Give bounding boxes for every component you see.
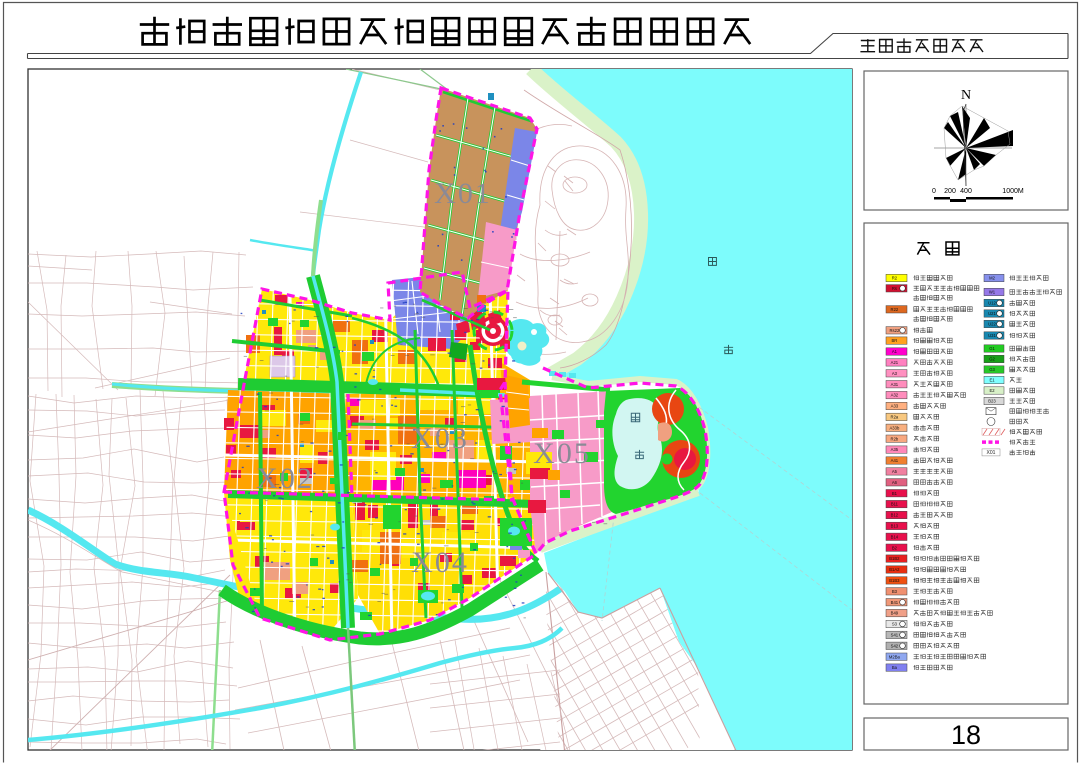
svg-text:A1: A1 (892, 349, 898, 354)
svg-text:A33b: A33b (890, 425, 900, 430)
svg-text:B1B3: B1B3 (889, 578, 900, 583)
svg-text:E2: E2 (989, 388, 995, 393)
svg-text:U12: U12 (988, 301, 996, 306)
svg-text:E1: E1 (989, 378, 995, 383)
svg-text:A6: A6 (892, 480, 898, 485)
svg-text:G3: G3 (989, 367, 995, 372)
svg-text:R2a: R2a (891, 415, 899, 420)
svg-text:G2: G2 (989, 357, 995, 362)
svg-text:B41: B41 (891, 600, 899, 605)
svg-text:A21: A21 (891, 360, 899, 365)
svg-text:W1: W1 (989, 290, 996, 295)
svg-text:M2: M2 (989, 276, 995, 281)
svg-text:A41: A41 (891, 458, 899, 463)
svg-text:U22: U22 (988, 322, 996, 327)
svg-text:X04: X04 (411, 546, 469, 579)
svg-text:B1: B1 (892, 491, 898, 496)
svg-text:A5: A5 (892, 469, 898, 474)
svg-text:B14: B14 (891, 534, 899, 539)
svg-text:X05: X05 (533, 437, 591, 470)
svg-text:A3: A3 (892, 371, 898, 376)
svg-text:1000M: 1000M (1002, 188, 1024, 195)
svg-text:B3: B3 (892, 589, 898, 594)
svg-text:Ba: Ba (892, 665, 898, 670)
svg-text:200: 200 (944, 188, 956, 195)
svg-text:M2Ba: M2Ba (889, 654, 901, 659)
svg-text:B1A2: B1A2 (889, 567, 900, 572)
svg-text:R2: R2 (892, 276, 898, 281)
svg-text:400: 400 (960, 188, 972, 195)
svg-text:B1B2: B1B2 (889, 556, 900, 561)
svg-text:X02: X02 (256, 462, 314, 495)
svg-text:B23: B23 (988, 399, 996, 404)
svg-text:A32: A32 (891, 393, 899, 398)
svg-text:X01: X01 (434, 177, 492, 210)
svg-text:U21: U21 (988, 311, 996, 316)
svg-text:R22: R22 (891, 307, 899, 312)
svg-text:R2b: R2b (891, 436, 899, 441)
svg-text:18: 18 (951, 720, 981, 750)
svg-text:S41: S41 (891, 633, 899, 638)
svg-text:Rs: Rs (892, 286, 897, 291)
svg-text:X01: X01 (987, 450, 996, 456)
svg-text:X03: X03 (411, 422, 469, 455)
svg-text:S42: S42 (891, 643, 899, 648)
svg-text:Rs22: Rs22 (890, 328, 900, 333)
svg-text:A35: A35 (891, 447, 899, 452)
svg-text:A31: A31 (891, 382, 899, 387)
svg-text:S3: S3 (892, 622, 898, 627)
svg-text:B12: B12 (891, 513, 899, 518)
svg-text:B49: B49 (891, 611, 899, 616)
svg-text:0: 0 (932, 188, 936, 195)
svg-text:U31: U31 (988, 333, 996, 338)
svg-text:B11: B11 (891, 502, 899, 507)
svg-text:BR: BR (891, 338, 897, 343)
svg-text:B13: B13 (891, 524, 899, 529)
svg-text:A33: A33 (891, 404, 899, 409)
svg-text:B2: B2 (892, 545, 898, 550)
svg-text:G1: G1 (989, 346, 995, 351)
svg-text:N: N (961, 88, 971, 103)
